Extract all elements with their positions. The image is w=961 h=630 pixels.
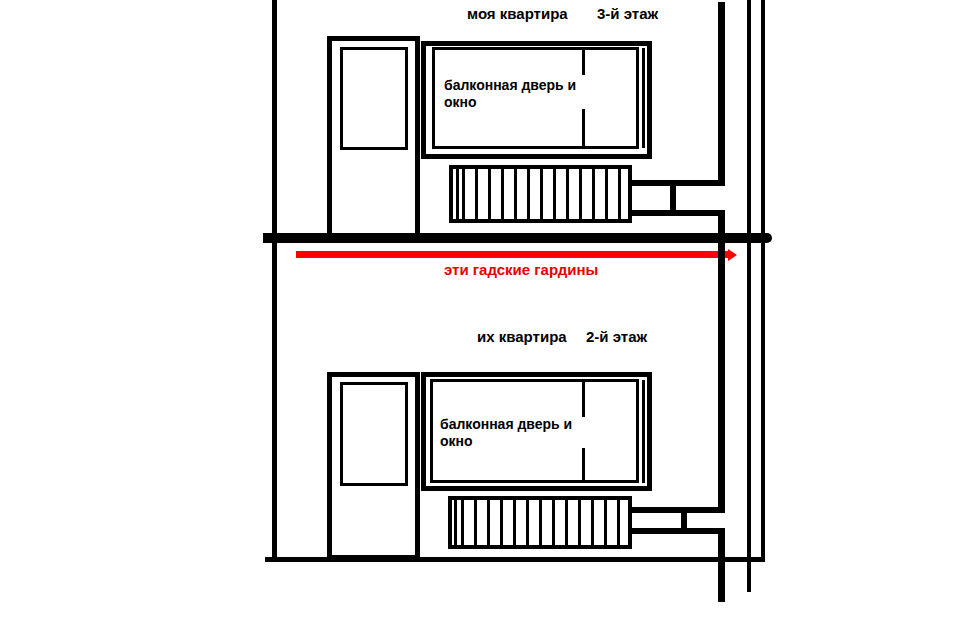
floor2-radiator-bypass-pipe bbox=[681, 507, 687, 534]
floor2-radiator-supply-pipe bbox=[630, 507, 725, 513]
curtain-label: эти гадские гардины bbox=[444, 261, 598, 278]
floor3-window-label-line1: балконная дверь и bbox=[444, 77, 576, 94]
floor2-radiator bbox=[448, 496, 632, 549]
curtain-rod-arrow-tip bbox=[728, 249, 737, 261]
heating-riser-middle-segment bbox=[718, 210, 725, 510]
floor2-balcony-door-glass bbox=[340, 382, 408, 486]
curtain-rod-line bbox=[296, 251, 728, 258]
floor2-window-label-line2: окно bbox=[440, 433, 473, 450]
right-wall-outer-line bbox=[761, 0, 765, 561]
floor3-window-divider-bottom-segment bbox=[582, 109, 585, 148]
floor2-apartment-label: их квартира bbox=[477, 328, 567, 345]
floor3-radiator-supply-pipe bbox=[630, 180, 725, 186]
left-wall-line bbox=[272, 0, 277, 561]
heating-riser-upper-segment bbox=[718, 2, 725, 186]
floor3-apartment-label: моя квартира bbox=[467, 5, 568, 22]
floor3-radiator bbox=[449, 165, 632, 223]
floor-slab-line bbox=[263, 233, 772, 243]
floor3-window-divider-top-segment bbox=[582, 48, 585, 75]
floor2-window-right-sash-line bbox=[642, 380, 645, 483]
floor2-radiator-return-pipe bbox=[630, 528, 725, 534]
paint-drawing-canvas: моя квартира 3-й этаж балконная дверь и … bbox=[0, 0, 961, 630]
floor3-window-label-line2: окно bbox=[444, 94, 477, 111]
floor3-radiator-bypass-pipe bbox=[670, 180, 676, 216]
floor2-window-label-line1: балконная дверь и bbox=[440, 416, 572, 433]
floor3-floor-label: 3-й этаж bbox=[597, 5, 658, 22]
floor2-window-divider-top-segment bbox=[582, 380, 585, 417]
floor3-window-right-sash-line bbox=[642, 48, 645, 148]
ground-floor-line bbox=[265, 557, 765, 562]
floor2-window-divider-bottom-segment bbox=[582, 448, 585, 483]
floor3-radiator-return-pipe bbox=[630, 210, 725, 216]
floor3-balcony-door-glass bbox=[340, 47, 408, 150]
heating-riser-lower-segment bbox=[718, 528, 725, 602]
floor2-floor-label: 2-й этаж bbox=[586, 328, 647, 345]
right-wall-inner-line bbox=[747, 0, 751, 592]
